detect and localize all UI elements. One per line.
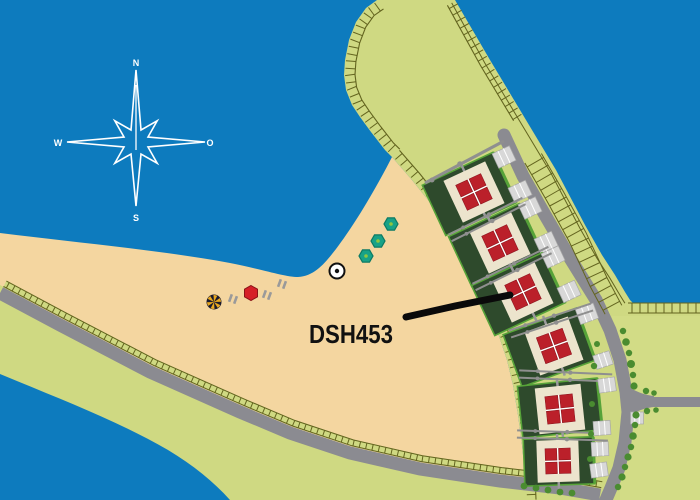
svg-text:W: W <box>54 138 63 148</box>
svg-text:DSH453: DSH453 <box>309 319 393 349</box>
svg-text:O: O <box>206 138 213 148</box>
svg-text:S: S <box>133 213 139 223</box>
svg-text:N: N <box>133 58 140 68</box>
